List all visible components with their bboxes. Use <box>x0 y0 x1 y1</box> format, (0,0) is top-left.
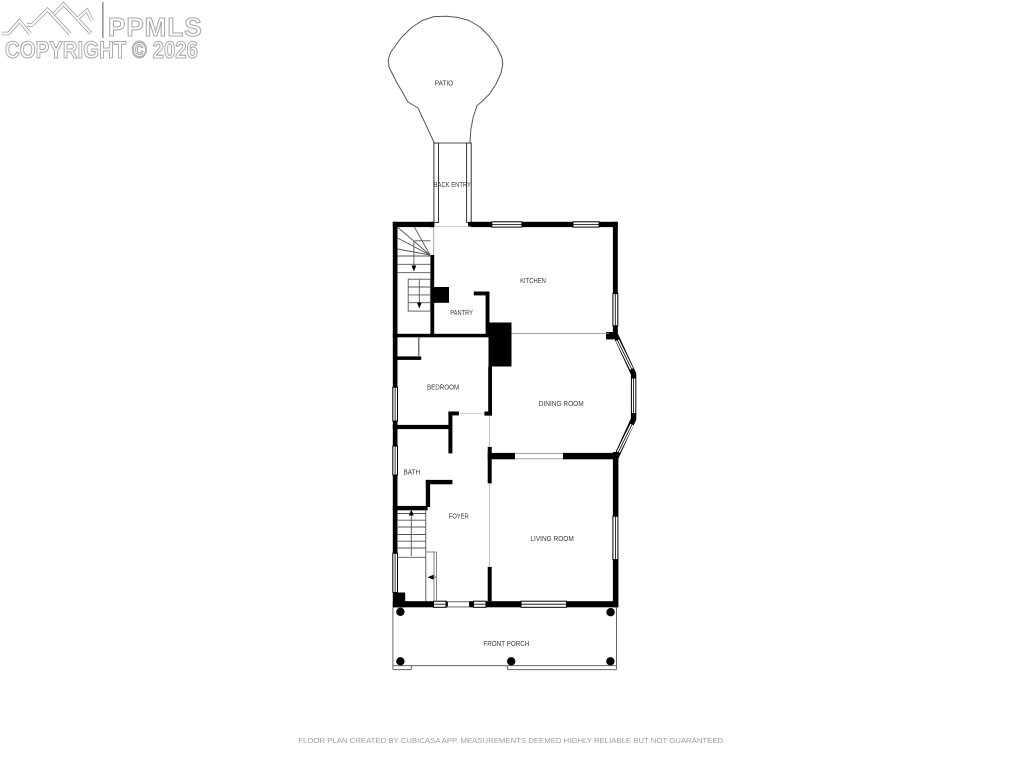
svg-text:LIVING ROOM: LIVING ROOM <box>530 534 573 543</box>
svg-text:BATH: BATH <box>403 468 420 477</box>
svg-text:COPYRIGHT © 2026: COPYRIGHT © 2026 <box>5 37 198 64</box>
svg-text:KITCHEN: KITCHEN <box>520 276 546 285</box>
svg-text:PATIO: PATIO <box>435 78 453 87</box>
svg-text:FOYER: FOYER <box>449 512 469 521</box>
svg-text:PANTRY: PANTRY <box>450 308 473 317</box>
svg-text:BACK ENTRY: BACK ENTRY <box>434 180 471 189</box>
svg-text:DINING ROOM: DINING ROOM <box>539 399 584 408</box>
svg-text:FLOOR PLAN CREATED BY CUBICASA: FLOOR PLAN CREATED BY CUBICASA APP. MEAS… <box>298 736 725 745</box>
svg-text:BEDROOM: BEDROOM <box>427 383 459 392</box>
svg-text:FRONT PORCH: FRONT PORCH <box>483 639 529 648</box>
